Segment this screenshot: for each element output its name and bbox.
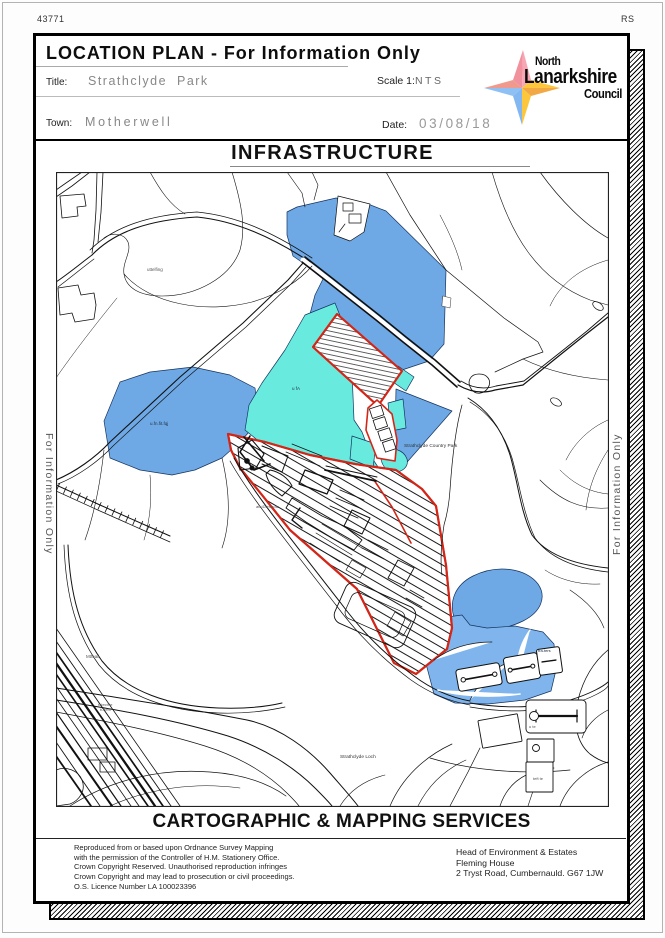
- svg-text:tra-ters: tra-ters: [538, 648, 551, 653]
- svg-text:att tDtestrote: att tDtestrote: [256, 504, 280, 509]
- svg-text:tOteftr: tOteftr: [100, 707, 112, 712]
- svg-text:Strathclyde Country Park: Strathclyde Country Park: [404, 443, 458, 449]
- svg-text:Strathclyde Loch: Strathclyde Loch: [340, 754, 376, 760]
- svg-text:u.fn.fit.fqj: u.fn.fit.fqj: [150, 421, 168, 426]
- svg-text:teft te: teft te: [533, 776, 544, 781]
- svg-text:u fA: u fA: [292, 386, 300, 391]
- svg-text:u te: u te: [529, 724, 536, 729]
- svg-text:uttelfing: uttelfing: [147, 267, 163, 272]
- svg-text:Mtfeall: Mtfeall: [86, 654, 99, 659]
